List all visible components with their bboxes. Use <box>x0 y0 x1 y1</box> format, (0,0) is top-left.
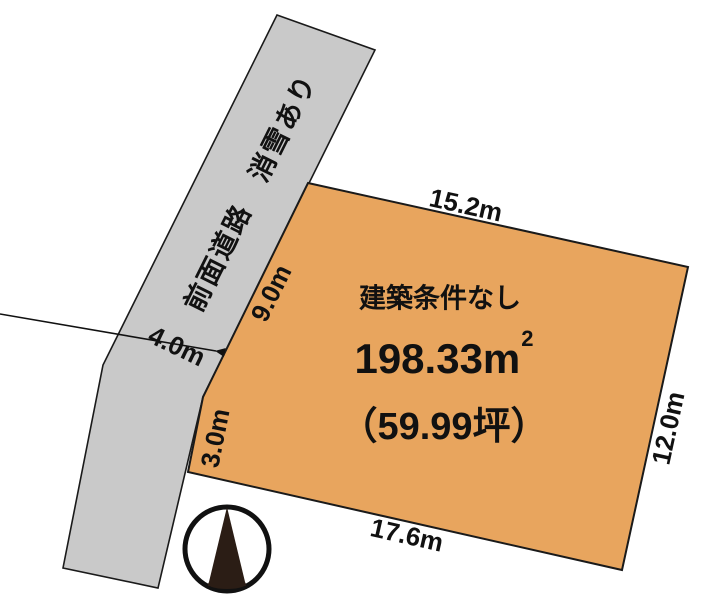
parcel-area-value: 198.33m <box>354 335 520 382</box>
parcel-area-superscript: 2 <box>521 326 533 351</box>
site-plan-diagram: 前面道路 消雪あり 15.2m 12.0m 17.6m 9.0m 3.0m 4.… <box>0 0 703 612</box>
parcel-area-label: 198.33m2 <box>354 338 533 380</box>
site-plan-shapes <box>0 0 703 612</box>
north-arrow-icon <box>185 507 269 591</box>
parcel-condition-label: 建築条件なし <box>359 286 521 313</box>
parcel-area-tsubo-label: （59.99坪） <box>339 408 548 446</box>
